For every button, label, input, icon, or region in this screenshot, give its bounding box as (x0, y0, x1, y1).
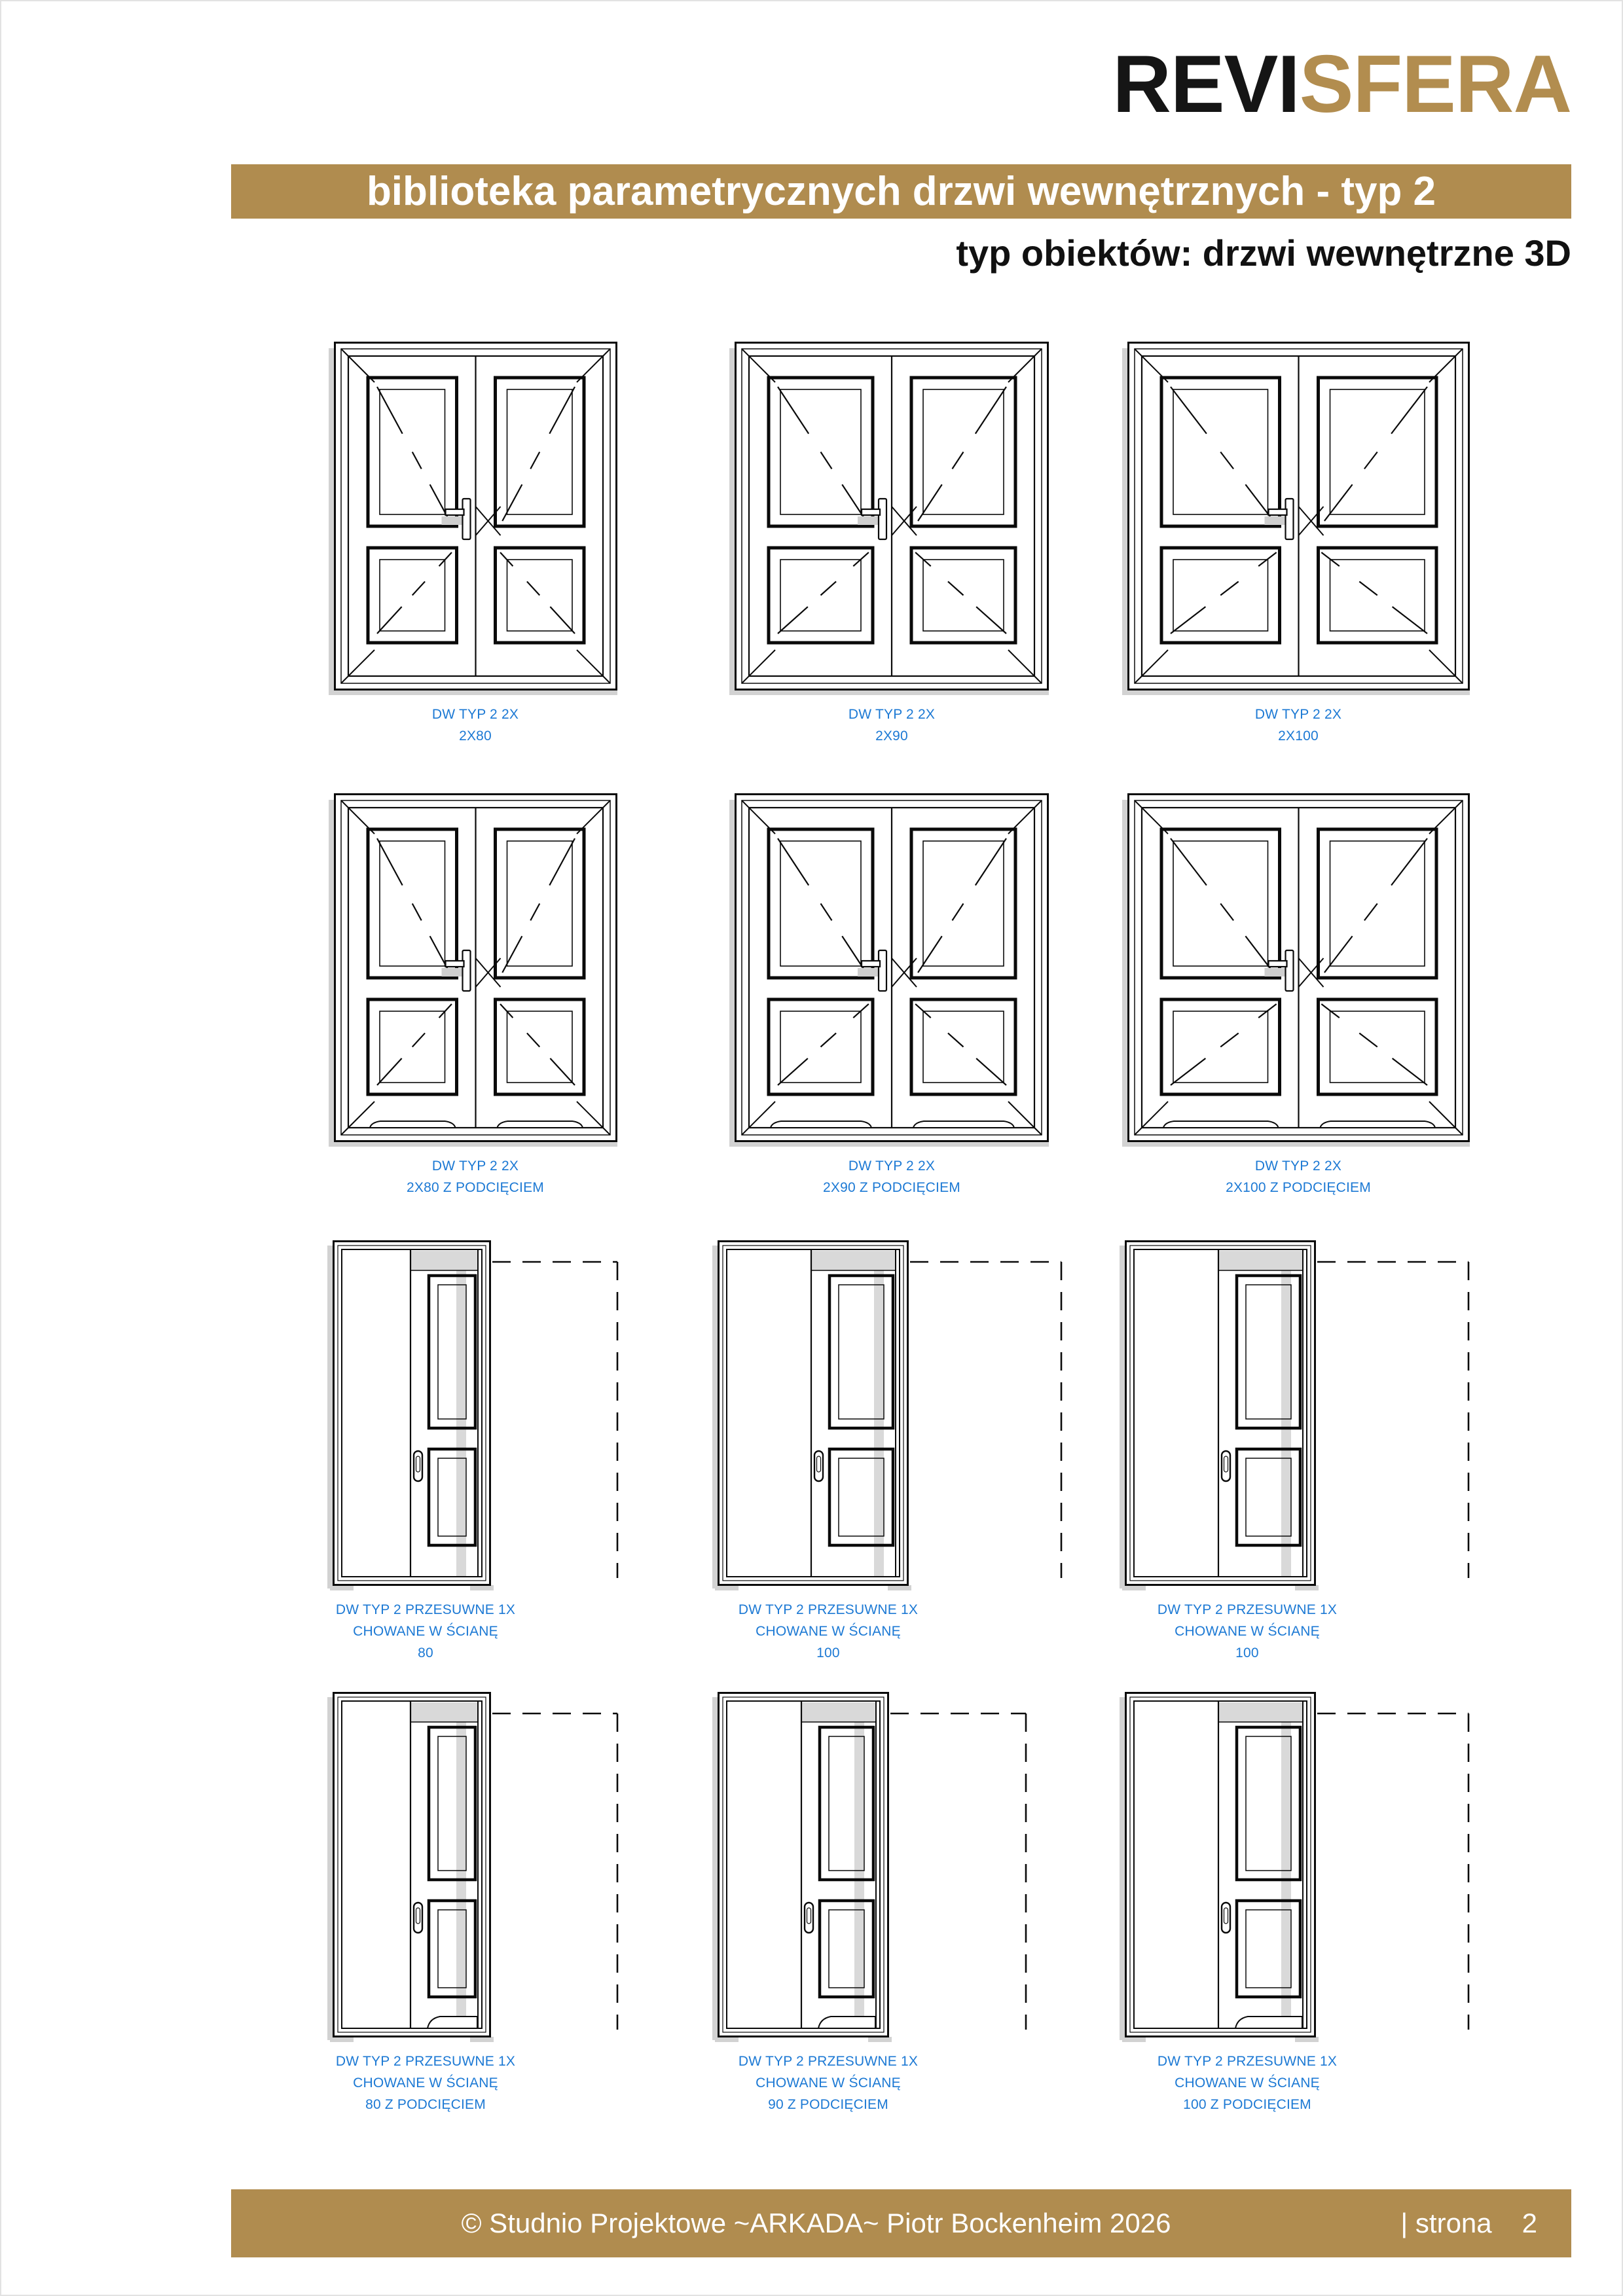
door-label: DW TYP 2 PRZESUWNE 1X CHOWANE W ŚCIANĘ 1… (632, 1599, 1025, 1664)
copyright-text: © Studnio Projektowe ~ARKADA~ Piotr Bock… (231, 2189, 1401, 2257)
banner-title: biblioteka parametrycznych drzwi wewnętr… (367, 168, 1436, 215)
page-number: 2 (1522, 2208, 1537, 2239)
sliding-door-drawing (711, 1690, 1035, 2045)
double-door-drawing (327, 791, 625, 1149)
door-label: DW TYP 2 PRZESUWNE 1X CHOWANE W ŚCIANĘ 9… (632, 2051, 1025, 2115)
catalog-page: REVISFERA biblioteka parametrycznych drz… (0, 0, 1623, 2296)
double-door-drawing (1121, 340, 1478, 698)
sliding-door-drawing (326, 1690, 627, 2045)
double-door-drawing (728, 340, 1057, 698)
page-label: | strona (1400, 2208, 1491, 2239)
double-door-drawing (1121, 791, 1478, 1149)
object-type-subtitle: typ obiektów: drzwi wewnętrzne 3D (956, 232, 1571, 274)
sliding-door-drawing (1118, 1690, 1478, 2045)
door-label: DW TYP 2 2X 2X80 Z PODCIĘCIEM (279, 1155, 672, 1198)
sliding-door-drawing (1118, 1238, 1478, 1593)
title-banner: biblioteka parametrycznych drzwi wewnętr… (231, 164, 1571, 219)
page-indicator: | strona 2 (1400, 2189, 1537, 2257)
door-label: DW TYP 2 2X 2X90 (695, 704, 1088, 747)
double-door-drawing (728, 791, 1057, 1149)
revisfera-logo: REVISFERA (1112, 38, 1571, 131)
logo-part-revi: REVI (1112, 39, 1299, 130)
door-label: DW TYP 2 2X 2X100 (1102, 704, 1495, 747)
door-label: DW TYP 2 2X 2X100 Z PODCIĘCIEM (1102, 1155, 1495, 1198)
door-label: DW TYP 2 PRZESUWNE 1X CHOWANE W ŚCIANĘ 8… (229, 2051, 622, 2115)
door-label: DW TYP 2 PRZESUWNE 1X CHOWANE W ŚCIANĘ 1… (1051, 1599, 1444, 1664)
door-label: DW TYP 2 PRZESUWNE 1X CHOWANE W ŚCIANĘ 1… (1051, 2051, 1444, 2115)
footer-bar: © Studnio Projektowe ~ARKADA~ Piotr Bock… (231, 2189, 1571, 2257)
sliding-door-drawing (326, 1238, 627, 1593)
door-label: DW TYP 2 2X 2X80 (279, 704, 672, 747)
sliding-door-drawing (711, 1238, 1070, 1593)
door-label: DW TYP 2 2X 2X90 Z PODCIĘCIEM (695, 1155, 1088, 1198)
double-door-drawing (327, 340, 625, 698)
logo-part-sfera: SFERA (1300, 39, 1571, 130)
door-label: DW TYP 2 PRZESUWNE 1X CHOWANE W ŚCIANĘ 8… (229, 1599, 622, 1664)
